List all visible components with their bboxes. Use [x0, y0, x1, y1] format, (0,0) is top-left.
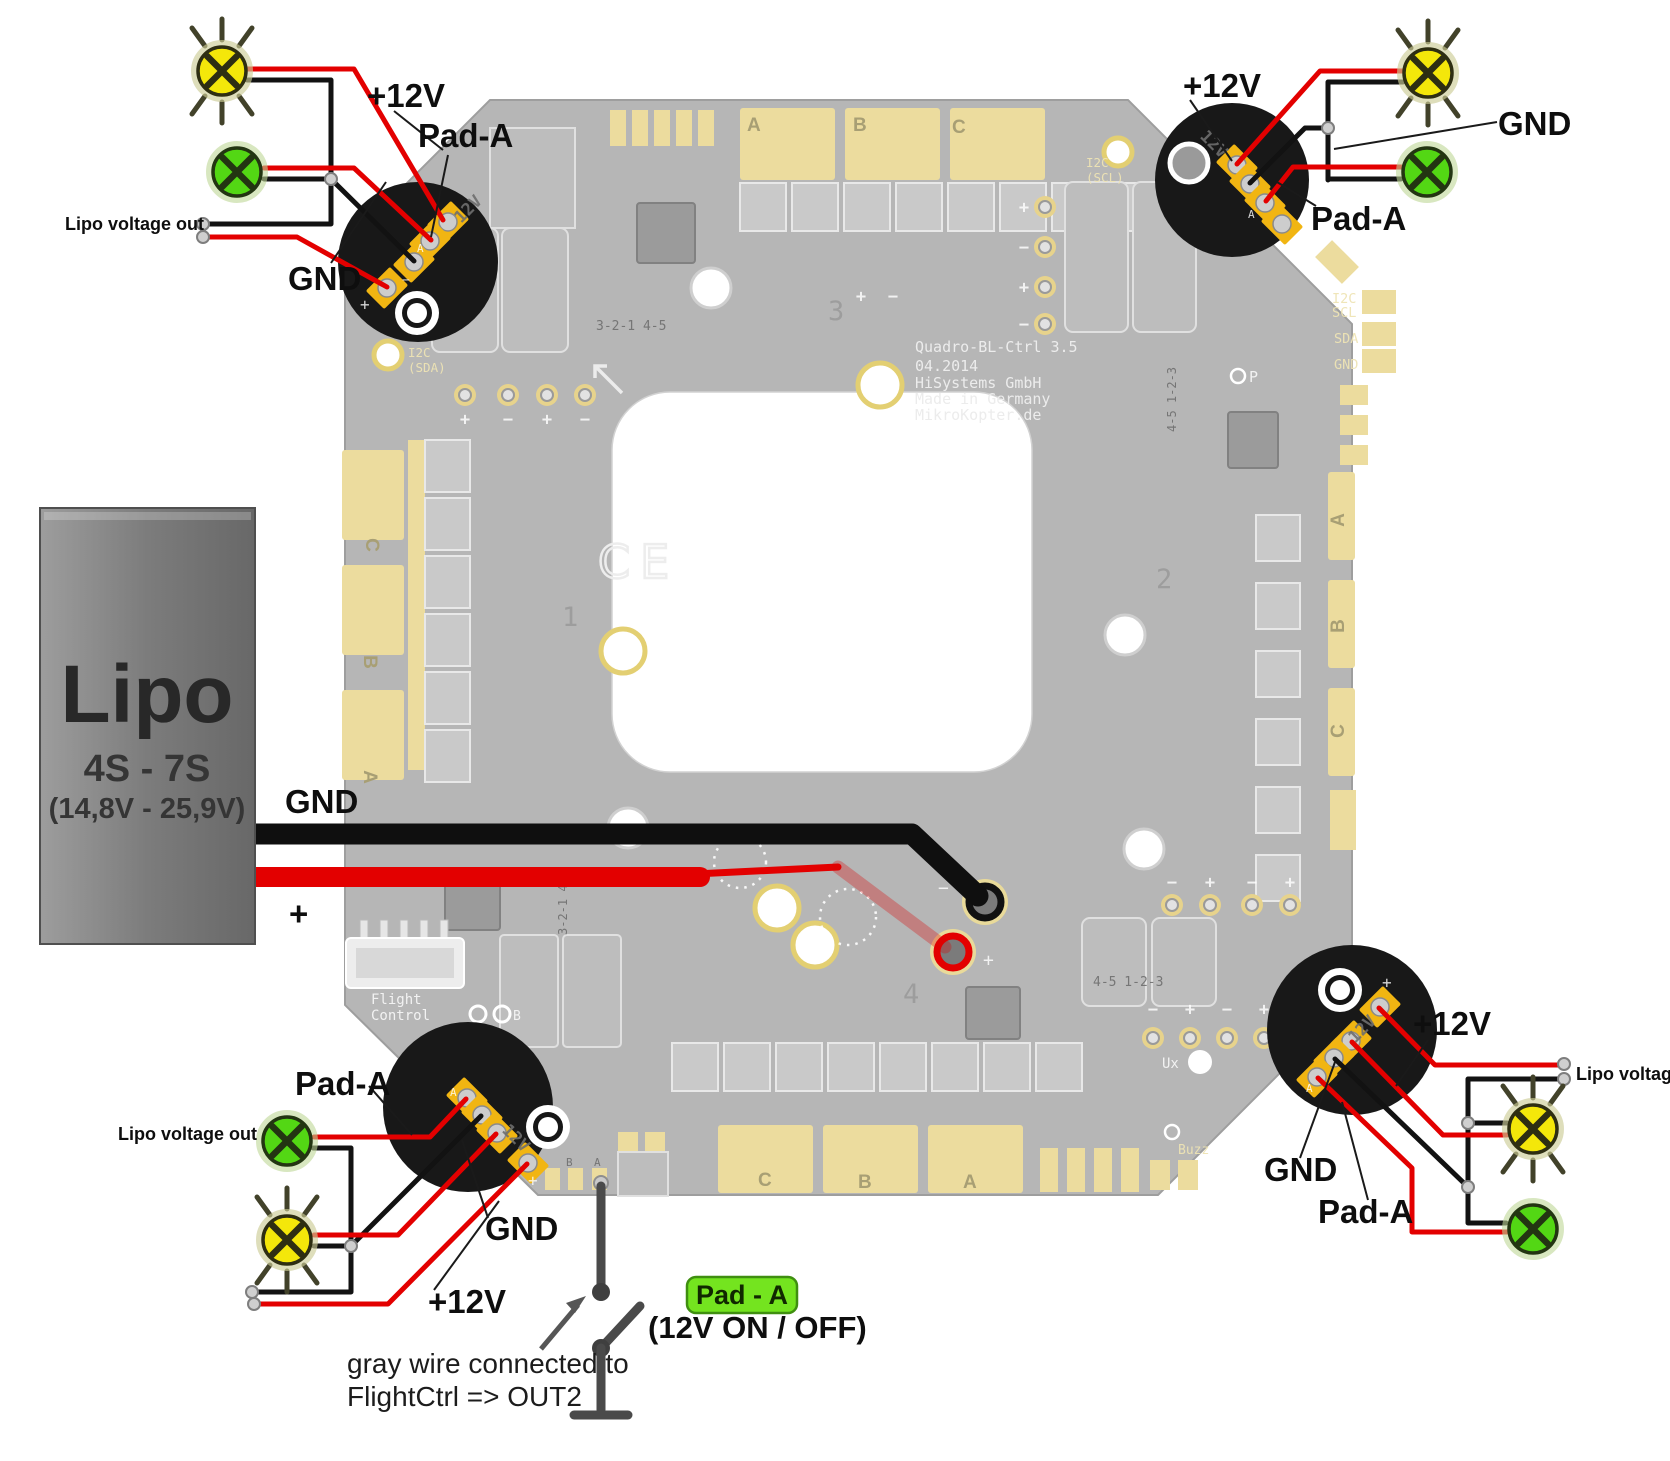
- phase-label-right-a: A: [1328, 513, 1349, 527]
- svg-text:+: +: [1205, 873, 1215, 893]
- buzz-label: Buzz: [1178, 1143, 1209, 1158]
- wiring-diagram: A B C C B A C B A: [0, 0, 1670, 1461]
- svg-text:+: +: [1019, 198, 1029, 218]
- i2c-scl-corner-label: I2C: [1086, 155, 1109, 170]
- svg-text:A: A: [417, 242, 424, 255]
- phase-label-bottom-b: B: [858, 1172, 872, 1193]
- phase-label-bottom-a: A: [963, 1172, 977, 1193]
- lipo-voltage-range: (14,8V - 25,9V): [49, 793, 246, 825]
- switch-mode-label: (12V ON / OFF): [648, 1310, 867, 1345]
- badge-text: Pad - A: [696, 1280, 788, 1310]
- svg-text:+: +: [1285, 873, 1295, 893]
- svg-text:+: +: [856, 287, 866, 307]
- switch-note-line1: gray wire connected to: [347, 1348, 629, 1379]
- led-module-top-right: 12V A: [1155, 103, 1309, 257]
- led-green-top-left: [209, 144, 265, 200]
- svg-text:A: A: [1306, 1082, 1313, 1095]
- tr-gnd-label: GND: [1498, 105, 1571, 142]
- svg-text:+: +: [1185, 1000, 1195, 1020]
- ux-label: Ux: [1162, 1056, 1179, 1072]
- switch-pad-a-label: A: [594, 1156, 601, 1169]
- br-pada-label: Pad-A: [1318, 1193, 1413, 1230]
- svg-text:−: −: [888, 287, 898, 307]
- pada-switch-badge: Pad - A: [687, 1277, 797, 1313]
- ce-mark: CE: [598, 535, 679, 589]
- svg-text:−: −: [1167, 873, 1177, 893]
- led-green-bottom-left: [259, 1113, 315, 1169]
- board-website: MikroKopter.de: [915, 406, 1041, 424]
- svg-text:(SDA): (SDA): [408, 360, 446, 375]
- lipo-gnd-label: GND: [285, 783, 358, 820]
- svg-text:−: −: [1247, 873, 1257, 893]
- phase-label-right-c: C: [1328, 724, 1349, 738]
- motor-number-4: 4: [903, 979, 919, 1010]
- svg-text:−: −: [1019, 315, 1029, 335]
- bl-gnd-label: GND: [485, 1210, 558, 1247]
- switch-arrow-icon: [541, 1296, 586, 1349]
- phase-label-top-a: A: [747, 115, 761, 136]
- bl-pada-label: Pad-A: [295, 1065, 390, 1102]
- tl-lipo-out-label: Lipo voltage out: [65, 214, 204, 234]
- conn-text-br: 4-5 1-2-3: [1093, 975, 1163, 990]
- svg-text:+: +: [360, 295, 370, 314]
- conn-text-right: 4-5 1-2-3: [1165, 367, 1179, 432]
- phase-label-top-c: C: [952, 117, 966, 138]
- pcb-board: A B C C B A C B A: [338, 100, 1437, 1196]
- svg-text:−: −: [1148, 1000, 1158, 1020]
- led-green-top-right: [1399, 144, 1455, 200]
- motor-number-2: 2: [1156, 564, 1172, 595]
- motor-number-3: 3: [828, 296, 844, 327]
- led-yellow-bottom-left: [257, 1188, 317, 1292]
- switch-note-line2: FlightCtrl => OUT2: [347, 1381, 582, 1412]
- phase-label-left-b: B: [359, 655, 380, 669]
- tl-pada-label: Pad-A: [418, 117, 513, 154]
- lipo-battery: Lipo 4S - 7S (14,8V - 25,9V): [40, 508, 255, 944]
- br-12v-label: +12V: [1413, 1005, 1491, 1042]
- svg-text:GND: GND: [1334, 357, 1358, 373]
- svg-text:SDA: SDA: [1334, 331, 1358, 347]
- tl-12v-label: +12V: [367, 77, 445, 114]
- led-module-top-left: 12V + A −: [338, 182, 498, 342]
- svg-text:+: +: [1382, 973, 1392, 992]
- pada-switch: [574, 1176, 640, 1415]
- svg-text:+: +: [528, 1171, 538, 1190]
- board-title: Quadro-BL-Ctrl 3.5: [915, 338, 1078, 356]
- p-label: P: [1249, 368, 1258, 386]
- svg-text:SCL: SCL: [1332, 305, 1356, 321]
- tr-pada-label: Pad-A: [1311, 200, 1406, 237]
- br-lipo-voltage-label: Lipo voltage: [1576, 1064, 1670, 1084]
- tr-12v-label: +12V: [1183, 67, 1261, 104]
- flight-label: Flight: [371, 992, 422, 1008]
- led-yellow-bottom-right: [1503, 1077, 1563, 1181]
- svg-text:−: −: [402, 273, 410, 288]
- switch-pad-b-label: B: [566, 1156, 573, 1169]
- lipo-title: Lipo: [60, 649, 233, 740]
- phase-label-right-b: B: [1328, 619, 1349, 633]
- svg-text:A: A: [450, 1086, 457, 1099]
- svg-text:+: +: [1019, 278, 1029, 298]
- svg-text:A: A: [1248, 208, 1255, 221]
- svg-text:−: −: [1222, 1000, 1232, 1020]
- svg-text:+: +: [1259, 1000, 1269, 1020]
- svg-text:(SCL): (SCL): [1086, 170, 1124, 185]
- svg-text:+: +: [542, 410, 552, 430]
- motor-number-1: 1: [562, 602, 578, 633]
- br-gnd-label: GND: [1264, 1151, 1337, 1188]
- board-date: 04.2014: [915, 357, 978, 375]
- conn-text-top: 3-2-1 4-5: [596, 319, 666, 334]
- phase-label-bottom-c: C: [758, 1170, 772, 1191]
- lipo-cells: 4S - 7S: [84, 748, 211, 790]
- svg-text:−: −: [503, 410, 513, 430]
- svg-text:+: +: [460, 410, 470, 430]
- bl-12v-label: +12V: [428, 1283, 506, 1320]
- pad-col-left: [342, 440, 425, 780]
- b-pad-label: B: [513, 1009, 521, 1024]
- led-green-bottom-right: [1505, 1201, 1561, 1257]
- bl-lipo-out-label: Lipo voltage out: [118, 1124, 257, 1144]
- led-yellow-top-left: [192, 19, 252, 123]
- phase-label-top-b: B: [853, 115, 867, 136]
- svg-text:+: +: [983, 950, 994, 971]
- tl-gnd-label: GND: [288, 260, 361, 297]
- led-yellow-top-right: [1398, 21, 1458, 125]
- control-label: Control: [371, 1008, 430, 1024]
- i2c-sda-corner-label: I2C: [408, 345, 431, 360]
- svg-text:−: −: [580, 410, 590, 430]
- svg-text:−: −: [1019, 238, 1029, 258]
- lipo-plus-label: +: [289, 895, 308, 932]
- led-module-bottom-right: 12V + A: [1267, 945, 1437, 1115]
- phase-label-left-a: A: [359, 770, 380, 784]
- phase-label-left-c: C: [361, 538, 382, 552]
